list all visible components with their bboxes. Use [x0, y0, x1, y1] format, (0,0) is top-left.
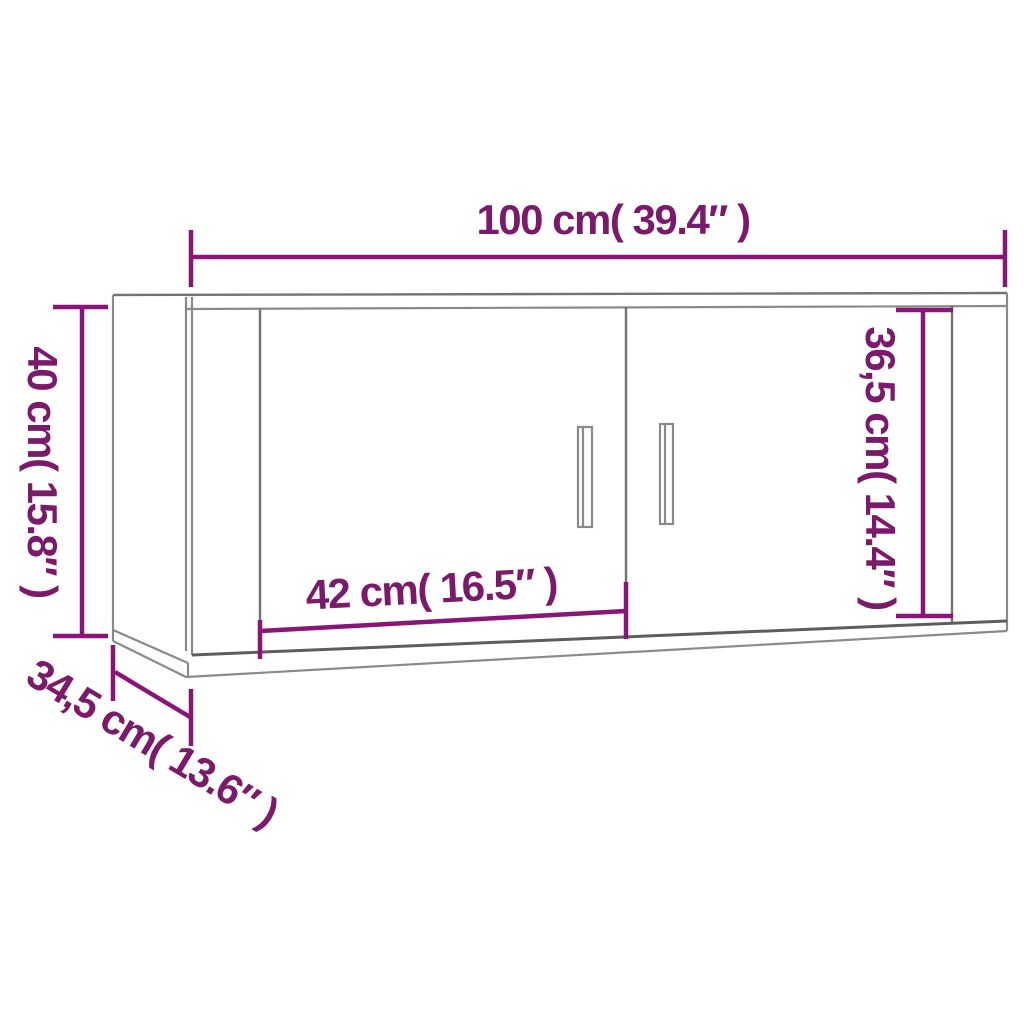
- dimension-door-height: 36,5 cm( 14.4″ ): [857, 310, 953, 616]
- door-height-dimension-label: 36,5 cm( 14.4″ ): [857, 326, 904, 609]
- width-dimension-label: 100 cm( 39.4″ ): [476, 196, 749, 243]
- cabinet-top-edge: [113, 293, 1007, 295]
- right-door-handle: [660, 424, 673, 524]
- product-dimension-image: 100 cm( 39.4″ ) 40 cm( 15.8″ ) 36,5 cm( …: [0, 0, 1024, 1024]
- dimension-width: 100 cm( 39.4″ ): [191, 196, 1005, 287]
- depth-dimension-label: 34,5 cm( 13.6″ ): [19, 649, 286, 835]
- handle-bar: [660, 424, 673, 524]
- cabinet-top-inner-edge: [186, 306, 1007, 309]
- cabinet-dimension-diagram: 100 cm( 39.4″ ) 40 cm( 15.8″ ) 36,5 cm( …: [0, 0, 1024, 1024]
- dimension-height: 40 cm( 15.8″ ): [19, 307, 108, 636]
- handle-bar: [578, 427, 592, 527]
- height-dimension-label: 40 cm( 15.8″ ): [19, 346, 66, 597]
- dimension-annotations: 100 cm( 39.4″ ) 40 cm( 15.8″ ) 36,5 cm( …: [19, 196, 1005, 836]
- door-width-dimension-label: 42 cm( 16.5″ ): [305, 558, 558, 618]
- left-door-handle: [578, 427, 592, 527]
